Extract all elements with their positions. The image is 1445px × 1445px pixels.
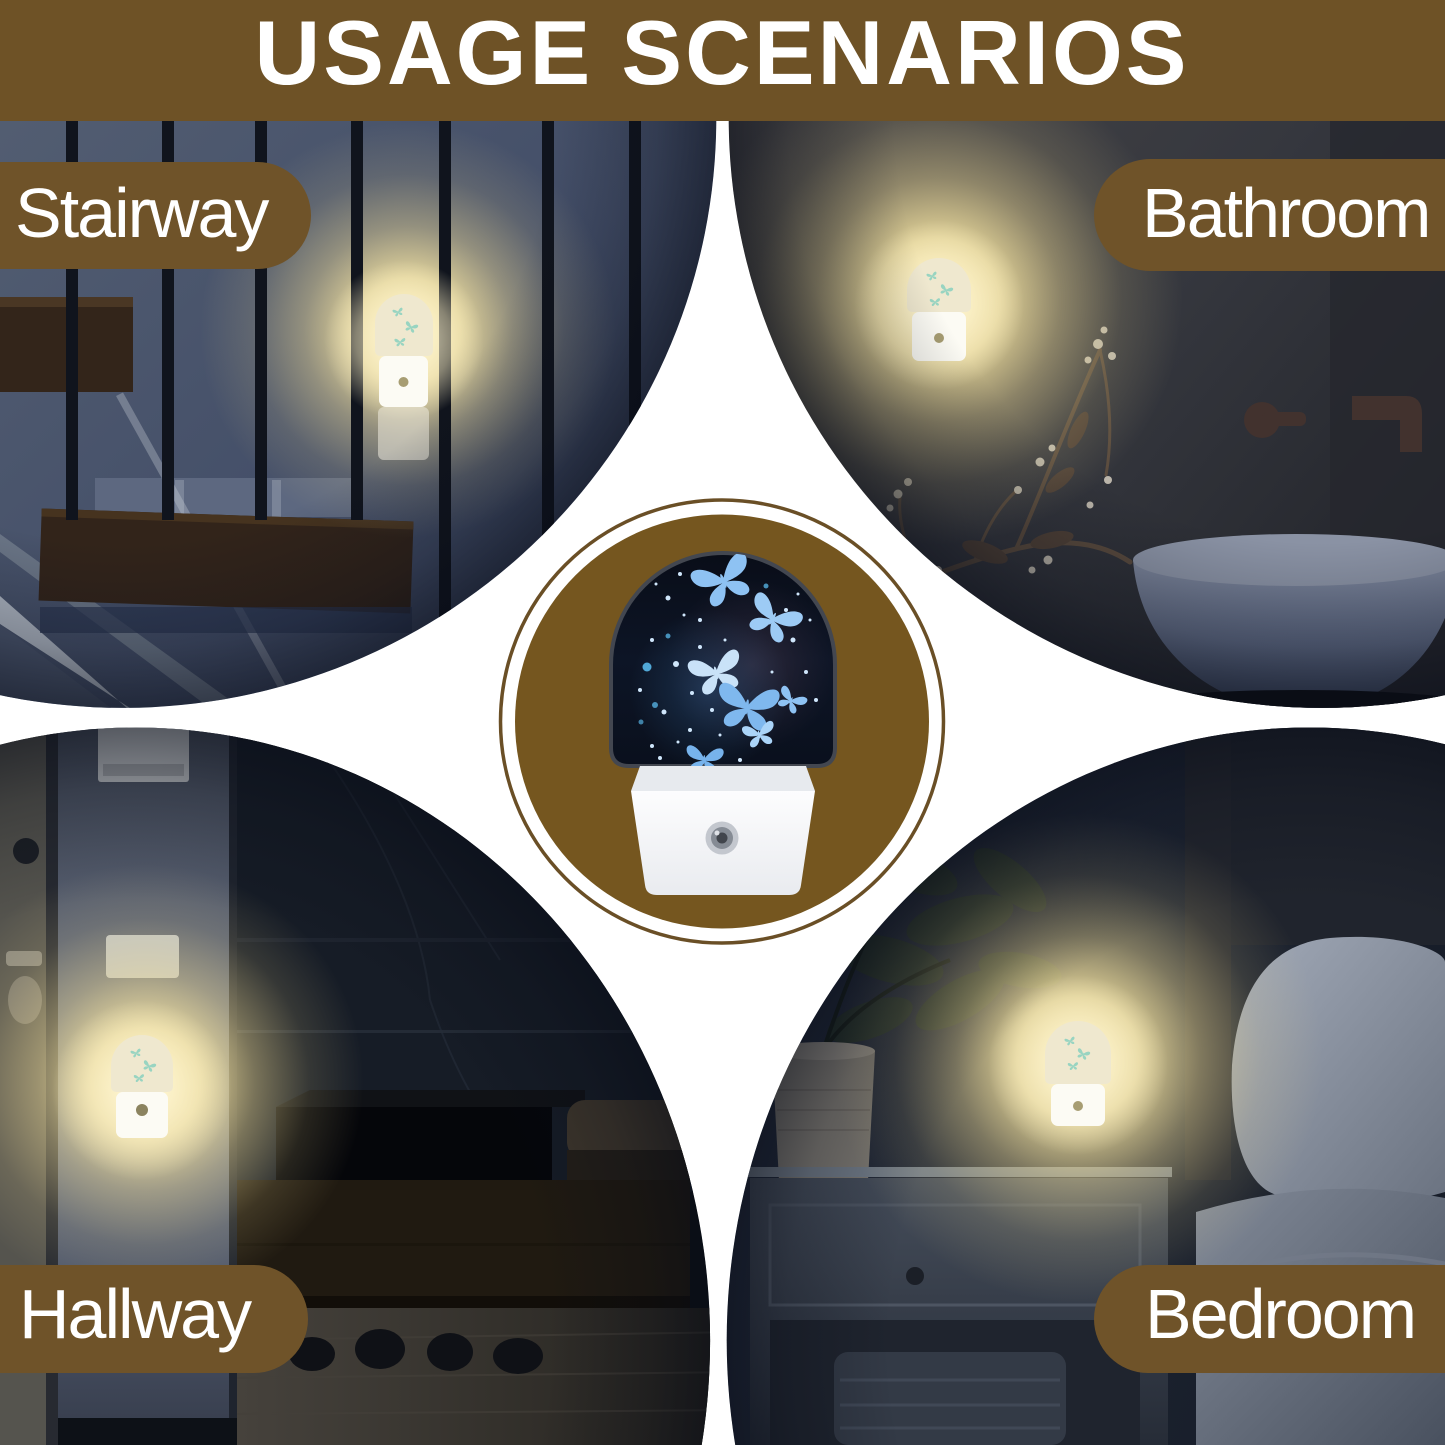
- svg-text:Bedroom: Bedroom: [1145, 1275, 1415, 1353]
- svg-text:Stairway: Stairway: [15, 174, 269, 252]
- svg-text:Hallway: Hallway: [19, 1275, 252, 1353]
- svg-text:Bathroom: Bathroom: [1142, 174, 1429, 252]
- svg-text:USAGE SCENARIOS: USAGE SCENARIOS: [255, 3, 1190, 104]
